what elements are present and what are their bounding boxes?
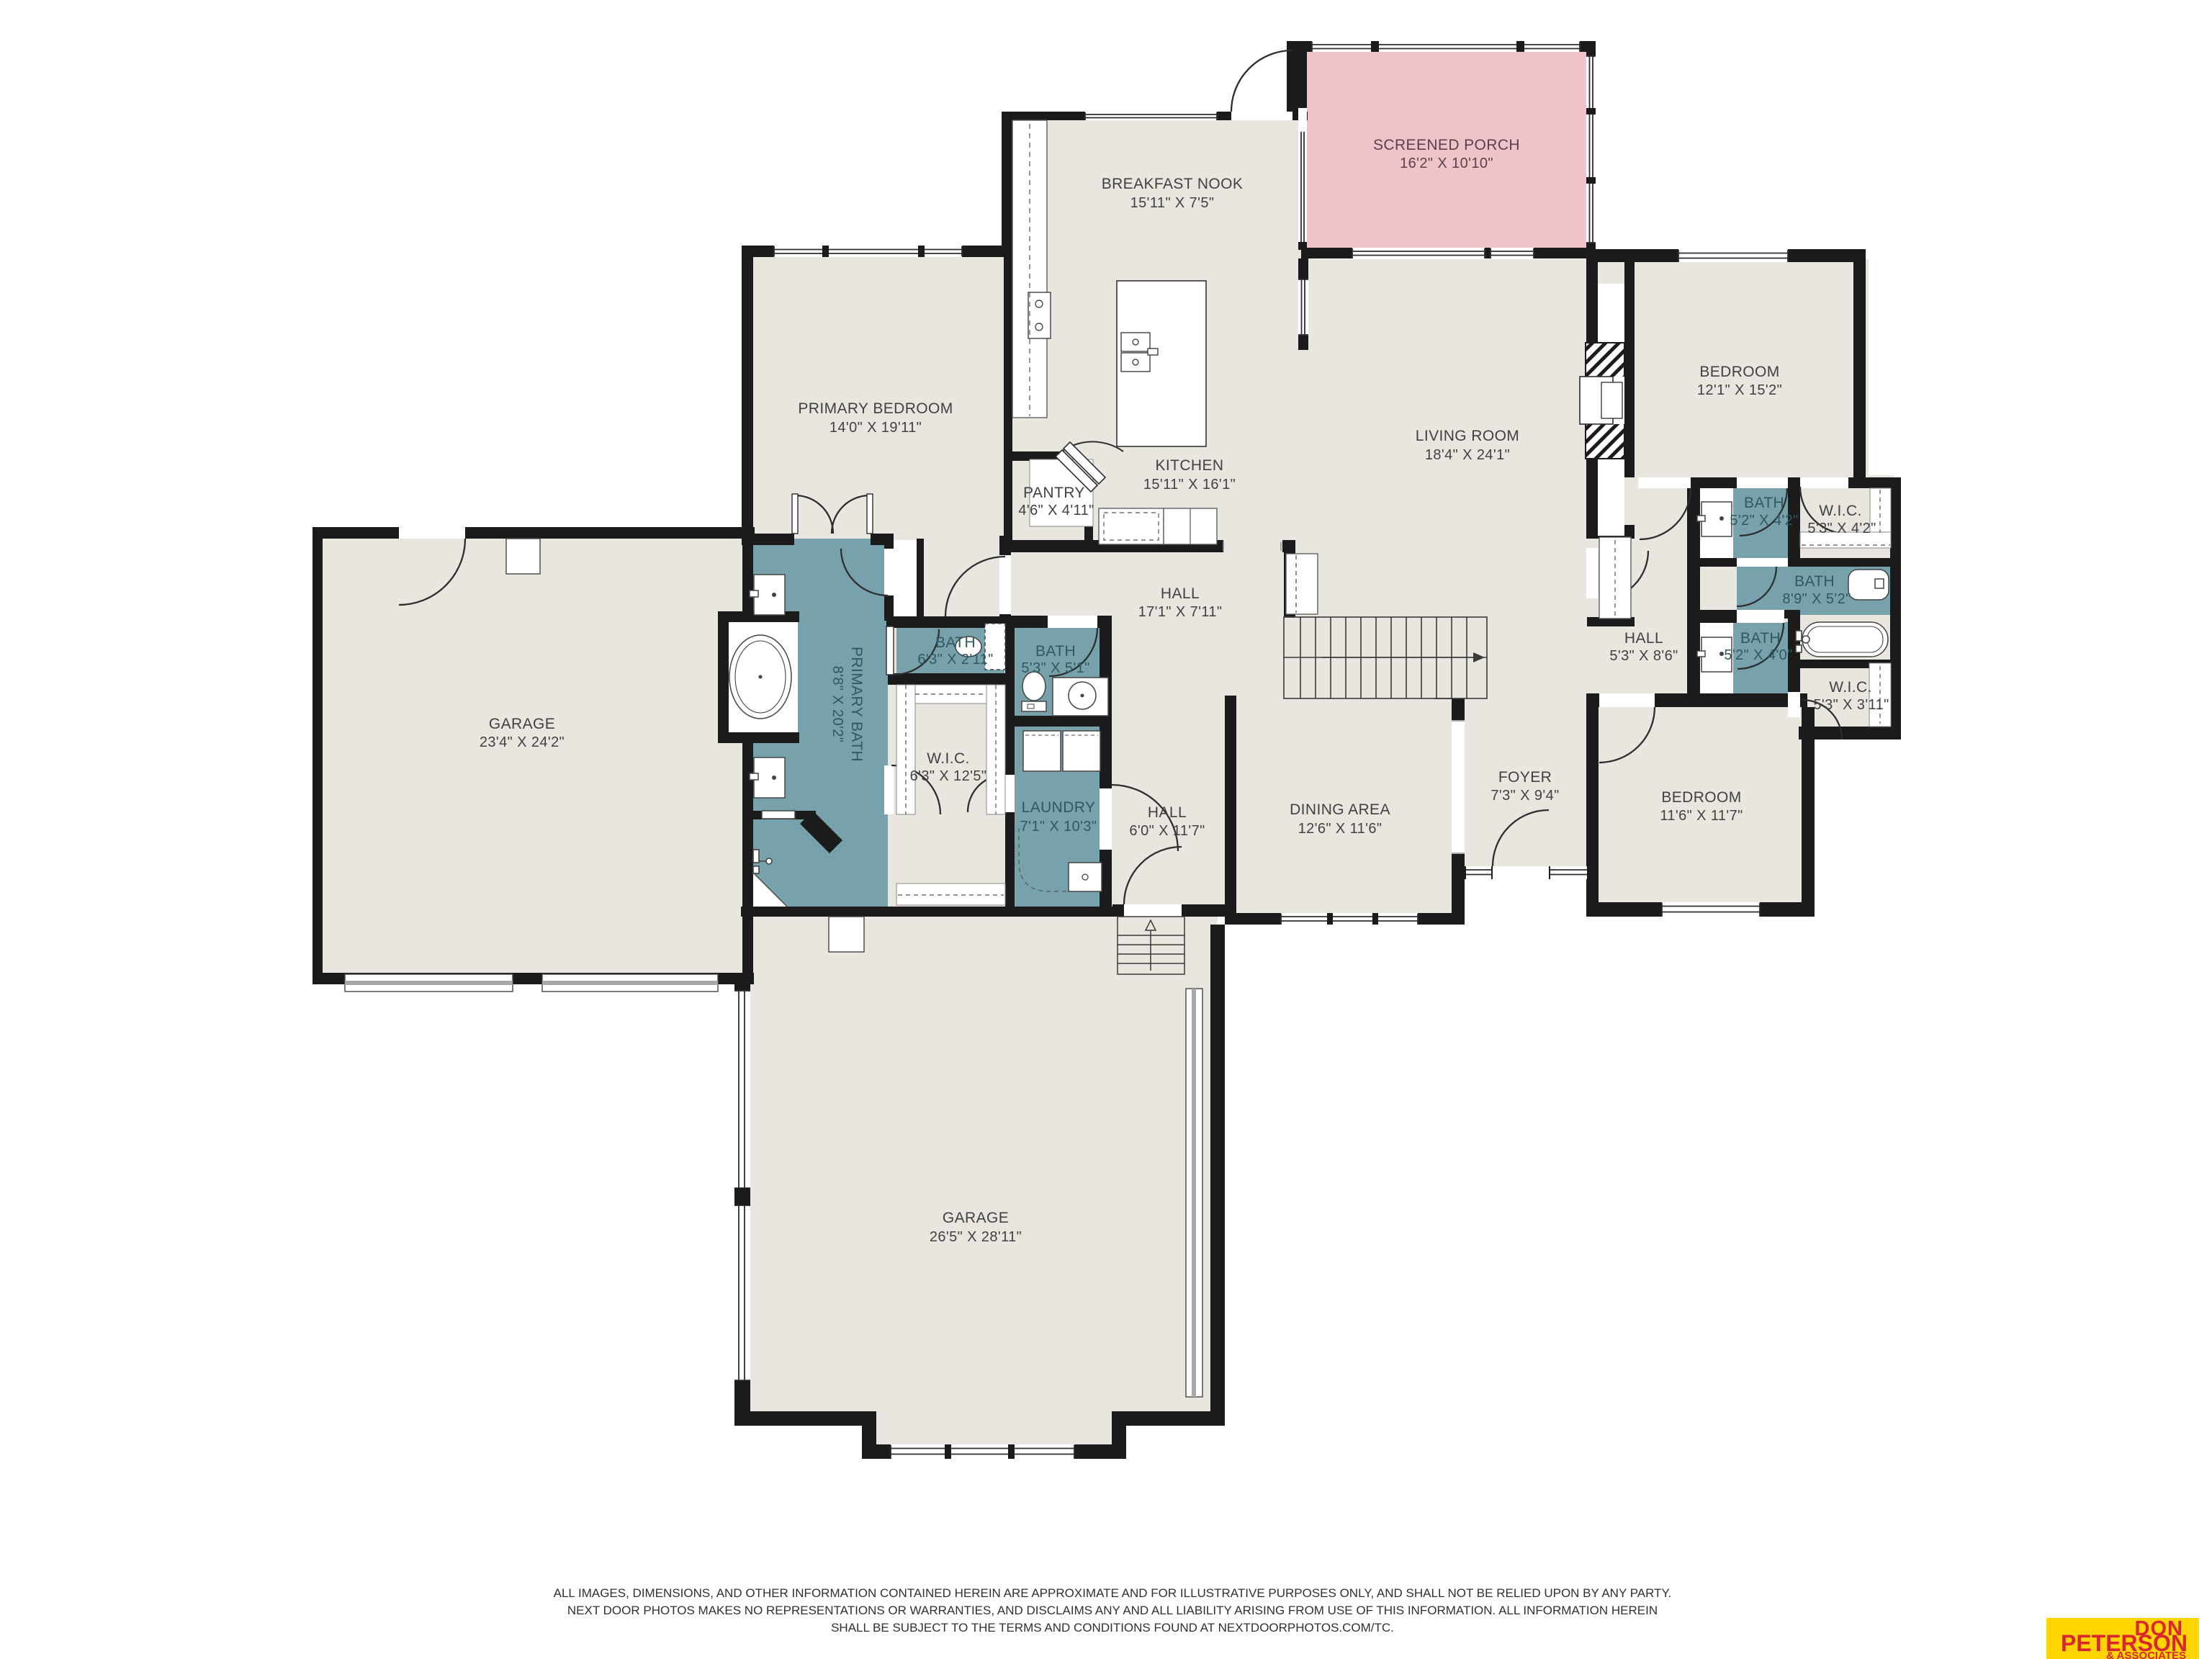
svg-text:26'5" X 28'11": 26'5" X 28'11" [930, 1229, 1022, 1245]
svg-text:SHALL BE SUBJECT TO THE TERMS: SHALL BE SUBJECT TO THE TERMS AND CONDIT… [831, 1621, 1394, 1635]
svg-text:PRIMARY BATH: PRIMARY BATH [848, 647, 865, 762]
svg-text:W.I.C.: W.I.C. [1829, 679, 1872, 696]
svg-text:8'8" X 20'2": 8'8" X 20'2" [829, 666, 845, 743]
svg-text:& ASSOCIATES: & ASSOCIATES [2106, 1650, 2186, 1659]
svg-text:FOYER: FOYER [1498, 769, 1552, 786]
svg-text:SCREENED PORCH: SCREENED PORCH [1373, 137, 1520, 153]
svg-text:7'3" X 9'4": 7'3" X 9'4" [1491, 788, 1559, 804]
svg-text:12'1" X 15'2": 12'1" X 15'2" [1697, 382, 1782, 398]
svg-text:BATH: BATH [1744, 495, 1784, 511]
svg-text:11'6" X 11'7": 11'6" X 11'7" [1660, 808, 1743, 824]
svg-text:BATH: BATH [1740, 630, 1781, 647]
svg-text:HALL: HALL [1148, 804, 1187, 821]
svg-text:16'2" X 10'10": 16'2" X 10'10" [1400, 156, 1493, 171]
svg-text:DINING AREA: DINING AREA [1290, 801, 1390, 818]
svg-text:5'2" X 4'0": 5'2" X 4'0" [1724, 647, 1792, 663]
svg-text:BEDROOM: BEDROOM [1699, 364, 1779, 380]
svg-text:PANTRY: PANTRY [1023, 485, 1085, 501]
svg-text:GARAGE: GARAGE [489, 716, 555, 732]
svg-text:LIVING ROOM: LIVING ROOM [1416, 428, 1519, 444]
svg-text:7'1" X 10'3": 7'1" X 10'3" [1020, 819, 1097, 835]
svg-text:6'0" X 11'7": 6'0" X 11'7" [1129, 823, 1205, 839]
svg-text:5'3" X 8'6": 5'3" X 8'6" [1609, 648, 1678, 664]
svg-text:6'3" X 12'5": 6'3" X 12'5" [910, 768, 987, 784]
svg-text:15'11" X 16'1": 15'11" X 16'1" [1143, 477, 1236, 493]
svg-text:5'3" X 5'1": 5'3" X 5'1" [1021, 660, 1089, 676]
svg-text:HALL: HALL [1161, 585, 1200, 602]
svg-text:4'6" X 4'11": 4'6" X 4'11" [1018, 503, 1094, 518]
svg-text:6'3" X 2'11": 6'3" X 2'11" [917, 652, 993, 667]
svg-text:BEDROOM: BEDROOM [1661, 789, 1741, 806]
svg-text:5'3" X 4'2": 5'3" X 4'2" [1807, 521, 1876, 536]
svg-text:BREAKFAST NOOK: BREAKFAST NOOK [1102, 176, 1244, 192]
svg-text:LAUNDRY: LAUNDRY [1022, 799, 1096, 816]
svg-text:14'0" X 19'11": 14'0" X 19'11" [829, 420, 922, 436]
svg-text:GARAGE: GARAGE [943, 1210, 1009, 1226]
svg-text:ALL IMAGES, DIMENSIONS, AND OT: ALL IMAGES, DIMENSIONS, AND OTHER INFORM… [554, 1586, 1672, 1600]
svg-text:W.I.C.: W.I.C. [1819, 503, 1862, 519]
svg-text:PRIMARY BEDROOM: PRIMARY BEDROOM [798, 400, 953, 417]
svg-text:W.I.C.: W.I.C. [927, 750, 970, 767]
svg-text:BATH: BATH [935, 634, 976, 651]
svg-text:BATH: BATH [1794, 573, 1835, 590]
svg-text:5'2" X 4'2": 5'2" X 4'2" [1730, 513, 1798, 529]
svg-text:12'6" X 11'6": 12'6" X 11'6" [1298, 821, 1382, 837]
svg-text:18'4" X 24'1": 18'4" X 24'1" [1425, 447, 1510, 463]
svg-text:HALL: HALL [1624, 630, 1663, 647]
svg-text:15'11" X 7'5": 15'11" X 7'5" [1130, 195, 1215, 211]
svg-text:BATH: BATH [1035, 643, 1076, 660]
svg-text:KITCHEN: KITCHEN [1156, 457, 1224, 474]
svg-text:17'1" X 7'11": 17'1" X 7'11" [1138, 604, 1223, 620]
svg-text:23'4" X 24'2": 23'4" X 24'2" [480, 734, 565, 750]
svg-text:8'9" X 5'2": 8'9" X 5'2" [1782, 591, 1851, 607]
svg-text:NEXT DOOR PHOTOS MAKES NO REPR: NEXT DOOR PHOTOS MAKES NO REPRESENTATION… [567, 1604, 1658, 1617]
svg-text:5'3" X 3'11": 5'3" X 3'11" [1813, 697, 1889, 713]
